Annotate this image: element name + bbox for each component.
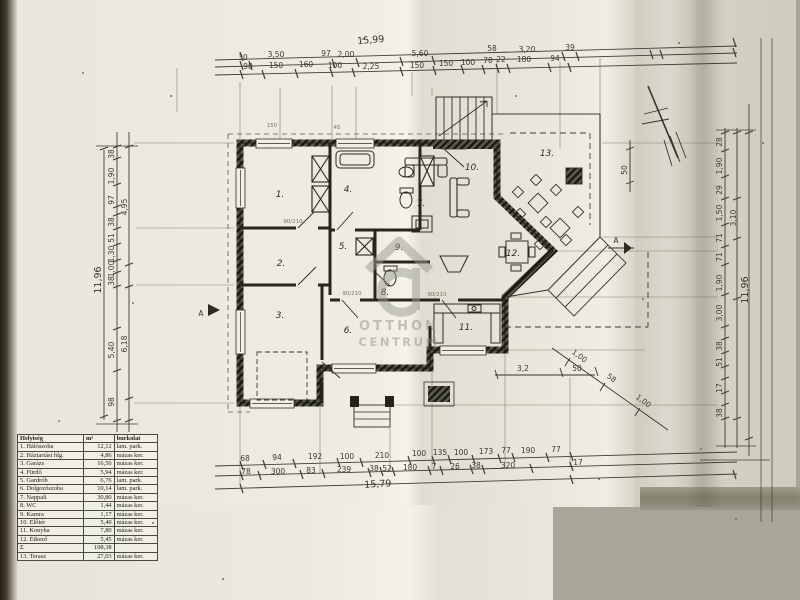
table-row: Σ108,38 [18,544,158,552]
table-row: 5. Gardrób6,76lam. park. [18,477,158,485]
dim: 3,20 [519,45,536,54]
table-cell: 108,38 [83,544,114,552]
dim: 150 [410,61,425,70]
dim: 17 [573,458,583,467]
dim: 38 [471,461,481,470]
table-cell: 13. Terasz [18,552,84,560]
room-label-1: 1. [276,190,285,200]
table-cell: mázas ker. [114,451,157,459]
dim: 239 [337,465,352,474]
table-header-cell: m² [83,435,114,443]
dim: 180 [517,55,532,64]
dim: 22 [496,55,506,64]
table-cell: mázas ker. [114,510,157,518]
dim: 39 [565,43,575,52]
dim: 38 [107,276,116,286]
watermark-text-1: OTTHON [359,319,439,334]
table-cell: 16,50 [83,460,114,468]
back-porch [350,396,394,427]
table-cell: 10,14 [83,485,114,493]
room-label-3: 3. [276,311,285,321]
table-row: 2. Háztartási hlg.4,86mázas ker. [18,451,158,459]
watermark-bar-icon [412,268,420,310]
table-cell: 6. Dolgozószoba [18,485,84,493]
table-cell: mázas ker. [114,535,157,543]
table-row: 7. Nappali30,80mázas ker. [18,493,158,501]
dim: 1,90 [715,157,724,174]
table-row: 10. Előtér5,40mázas ker. [18,519,158,527]
bottom-dimension-chain: 68 94 192 100 210 100 135 100 173 77 190… [215,445,737,493]
dim: 77 [501,446,511,455]
dim: 2,00 [338,50,355,59]
room-label-10: 10. [465,163,479,173]
dim: 52 [382,464,392,473]
dim: 135 [433,448,448,457]
dim: 160 [299,60,314,69]
dim: 78 [241,467,251,476]
dim: 100 [461,58,476,67]
table-cell: 5,94 [83,468,114,476]
scan-left-edge [0,0,18,600]
room-label-12: 12. [506,249,520,259]
dim: 51 [107,233,116,243]
table-cell: lam. park. [114,485,157,493]
dim: 1,30 [107,245,116,262]
dim: 100 [340,452,355,461]
door-size-note: 90/210 [342,291,362,297]
table-cell: 4. Fürdő [18,468,84,476]
dim: 38 [107,217,116,227]
dim-diag: 58 [605,372,618,385]
dim: 100 [412,449,427,458]
tv-stand [440,256,468,272]
dim: 30 [238,53,248,62]
dim: 3,10 [729,209,738,226]
table-cell: mázas ker. [114,527,157,535]
room-label-7: 7. [417,199,426,209]
diagonal-dim [552,348,668,430]
table-header-cell: Helyiség [18,435,84,443]
door-size-note: 90/210 [283,219,303,225]
scan-noise [0,0,2,2]
watermark-text-2: CENTRUM [359,335,440,349]
dim: 97 [321,49,331,58]
pencil-note: 45 [334,125,341,131]
table-cell: 4,86 [83,451,114,459]
dim: 1,00 [107,260,116,277]
room-area-table-body: 1. Hálószoba12,12lam. park.2. Háztartási… [18,443,158,561]
dim: 4,95 [120,198,129,215]
dim: 98 [107,397,116,407]
table-cell: 10. Előtér [18,519,84,527]
dim: 83 [306,466,316,475]
table-cell: mázas ker. [114,468,157,476]
dim: 38 [107,149,116,159]
table-cell: Σ [18,544,84,552]
room-area-table: Helyiségm²burkolat 1. Hálószoba12,12lam.… [17,434,158,561]
dim: 94 [550,54,560,63]
section-label-right: A [613,236,619,245]
section-marker-right [624,242,632,254]
table-cell: mázas ker. [114,502,157,510]
room-label-6: 6. [344,326,353,336]
dim: 180 [403,463,418,472]
room-label-13: 13. [540,149,554,159]
dim: 71 [715,233,724,243]
dim: 320 [501,461,516,470]
table-cell: 8. WC [18,502,84,510]
terrace-furniture [512,168,583,250]
table-header-cell: burkolat [114,435,157,443]
pencil-note: 150 [267,123,278,129]
house-plan [228,97,648,427]
table-row: 6. Dolgozószoba10,14lam. park. [18,485,158,493]
dim: 150 [269,61,284,70]
table-cell: 9. Kamra [18,510,84,518]
table-row: 13. Terasz27,03mázas ker. [18,552,158,560]
dim: 2,25 [363,62,380,71]
table-cell: 27,03 [83,552,114,560]
dim: 5,60 [412,49,429,58]
watermark-roof-icon [368,241,430,270]
dim: 71 [715,252,724,262]
table-cell [114,544,157,552]
room-label-5: 5. [339,242,348,252]
room-label-2: 2. [277,259,286,269]
dim: 29 [715,185,724,195]
table-cell: mázas ker. [114,493,157,501]
table-cell: 1. Hálószoba [18,443,84,451]
dim-terrace-side: 50 [620,165,629,175]
bath-toilet [400,188,413,208]
dim: 190 [521,446,536,455]
table-cell: 11. Konyha [18,527,84,535]
table-cell: 12,12 [83,443,114,451]
table-cell: lam. park. [114,477,157,485]
table-cell: 30,80 [83,493,114,501]
dim: 7 [432,462,437,471]
dim: 68 [240,454,250,463]
entry-stairs [433,97,497,149]
table-cell: 12. Étkező [18,535,84,543]
table-cell: 2. Háztartási hlg. [18,451,84,459]
planter [566,168,582,184]
bathtub [336,151,374,168]
right-dimension-chain: 28 1,90 29 1,50 71 71 1,90 3,00 38 51 17… [700,38,772,522]
table-cell: 1,44 [83,502,114,510]
table-row: 8. WC1,44mázas ker. [18,502,158,510]
kitchen-step-block [424,382,454,406]
dim-terrace-width: 3,2 [517,364,529,373]
dim: 100 [328,61,343,70]
dim-diag: 1,00 [634,392,653,409]
dim: 6,18 [120,335,129,352]
table-cell: 7. Nappali [18,493,84,501]
dim: 26 [450,462,460,471]
table-row: 12. Étkező5,45mázas ker. [18,535,158,543]
dim: 1,50 [715,204,724,221]
table-row: 9. Kamra1,17mázas ker. [18,510,158,518]
table-cell: 5. Gardrób [18,477,84,485]
dim: 3,00 [715,304,724,321]
dim: 78 [483,56,493,65]
table-row: 3. Garázs16,50mázas ker. [18,460,158,468]
table-cell: 1,17 [83,510,114,518]
dim: 300 [271,467,286,476]
dim: 77 [551,445,561,454]
windows [236,139,486,408]
table-cell: 7,80 [83,527,114,535]
table-cell: mázas ker. [114,552,157,560]
dim: 98 [243,62,253,71]
dim: 150 [439,59,454,68]
room-label-11: 11. [459,323,473,333]
table-cell: 5,45 [83,535,114,543]
dim: 1,90 [715,274,724,291]
dim: 3,50 [268,50,285,59]
dim: 94 [272,453,282,462]
table-cell: 5,40 [83,519,114,527]
table-cell: mázas ker. [114,519,157,527]
dim: 100 [454,448,469,457]
garage-parking-outline [257,352,307,400]
dim: 58 [487,44,497,53]
dim: 210 [375,451,390,460]
dim: 97 [107,195,116,205]
table-row: 4. Fürdő5,94mázas ker. [18,468,158,476]
dim: 38 [369,464,379,473]
table-header-row: Helyiségm²burkolat [18,435,158,443]
scanned-floor-plan: 15,99 30 3,50 97 2,00 5,60 58 3,20 39 98… [0,0,800,600]
dim-total-left: 11,96 [93,266,104,293]
room-label-4: 4. [344,185,353,195]
table-cell: lam. park. [114,443,157,451]
table-row: 11. Konyha7,80mázas ker. [18,527,158,535]
table-cell: 6,76 [83,477,114,485]
dim-terrace-w2: 50 [572,364,582,373]
dim: 192 [308,452,323,461]
dim: 51 [715,357,724,367]
section-label-left: A [198,309,204,318]
dim: 173 [479,447,494,456]
top-dimension-chain: 15,99 30 3,50 97 2,00 5,60 58 3,20 39 98… [215,34,737,79]
table-cell: 3. Garázs [18,460,84,468]
section-marker-left [208,304,220,316]
left-dimension-chain: 38 1,90 97 38 51 1,30 1,00 38 5,40 98 4,… [93,132,138,432]
table-cell: mázas ker. [114,460,157,468]
armchair [450,178,469,217]
door-size-note: 90/210 [427,292,447,298]
dim: 5,40 [107,341,116,358]
terrace [492,114,648,327]
bath-sink [399,167,413,177]
dim-total-right: 11,96 [740,276,751,303]
dim-total-bottom: 15,79 [364,478,392,490]
dim: 38 [715,408,724,418]
terrace-width-dim [495,367,598,379]
table-row: 1. Hálószoba12,12lam. park. [18,443,158,451]
dim: 17 [715,383,724,393]
dim: 28 [715,137,724,147]
dim-total-top: 15,99 [357,34,385,47]
dim: 38 [715,341,724,351]
dim: 1,90 [107,167,116,184]
